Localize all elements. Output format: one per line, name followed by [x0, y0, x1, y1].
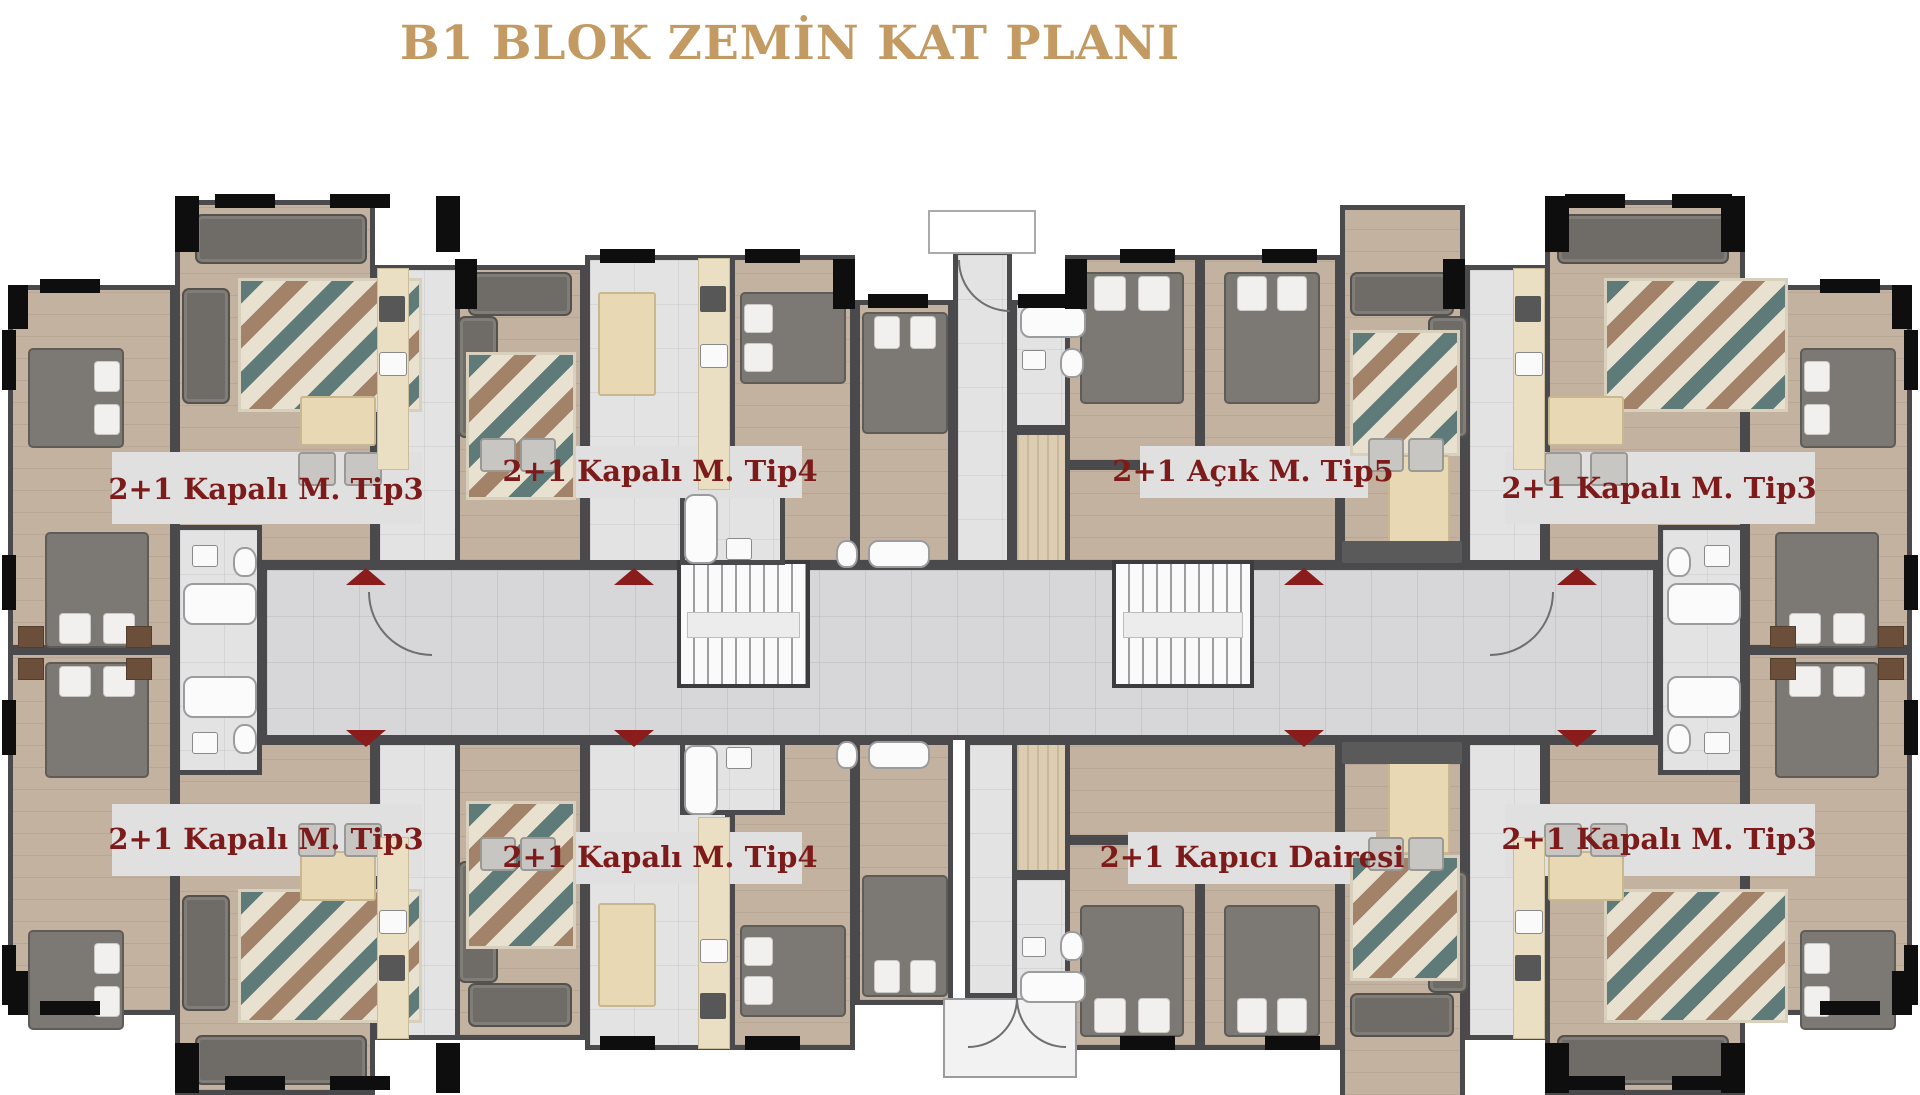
wall-pier — [833, 259, 855, 309]
entrance-arrow-up-icon — [614, 568, 654, 585]
entrance-arrow-down-icon — [614, 730, 654, 747]
wall-pier — [1545, 1043, 1569, 1093]
nightstand — [1878, 626, 1904, 648]
sofa — [1350, 272, 1454, 316]
window-bar — [330, 1076, 390, 1090]
unit-label-tip3-bottom-right: 2+1 Kapalı M. Tip3 — [1501, 822, 1816, 856]
window-bar — [1904, 700, 1918, 755]
bathroom-sink — [1704, 732, 1730, 754]
north-entrance-porch — [928, 210, 1036, 254]
bed — [740, 292, 846, 384]
bathroom-sink — [1022, 350, 1046, 370]
entrance-arrow-down-icon — [1284, 730, 1324, 747]
stove-icon — [379, 296, 405, 322]
toilet — [836, 741, 858, 769]
bed — [1080, 905, 1184, 1037]
window-bar — [1262, 249, 1317, 263]
window-bar — [868, 294, 928, 308]
window-bar — [225, 1076, 285, 1090]
bathtub — [183, 583, 257, 625]
wall-pier — [1892, 285, 1912, 329]
entrance-arrow-up-icon — [346, 568, 386, 585]
kitchen-counter — [1513, 837, 1545, 1039]
kitchen-counter — [1342, 742, 1462, 764]
wall-pier — [8, 285, 28, 329]
bathroom-sink — [726, 747, 752, 769]
unit-label-tip4-top: 2+1 Kapalı M. Tip4 — [502, 454, 817, 488]
bed — [28, 348, 124, 448]
kitchen-sink — [1515, 352, 1543, 376]
stove-icon — [379, 955, 405, 981]
unit-label-tip5-top: 2+1 Açık M. Tip5 — [1112, 454, 1393, 488]
wall-pier — [1065, 259, 1087, 309]
window-bar — [2, 700, 16, 755]
nightstand — [126, 626, 152, 648]
toilet — [1060, 931, 1084, 961]
stove-icon — [700, 286, 726, 312]
unit-label-tip3-top-right: 2+1 Kapalı M. Tip3 — [1501, 471, 1816, 505]
bathroom-sink — [192, 545, 218, 567]
kitchen-sink — [700, 939, 728, 963]
window-bar — [1904, 330, 1918, 390]
stove-icon — [1515, 955, 1541, 981]
entrance-arrow-down-icon — [346, 730, 386, 747]
window-bar — [600, 249, 655, 263]
nightstand — [18, 626, 44, 648]
kitchen-sink — [379, 352, 407, 376]
kitchen-sink — [700, 344, 728, 368]
stairwell — [677, 560, 810, 688]
window-bar — [40, 1001, 100, 1015]
toilet — [233, 724, 257, 754]
rug — [1604, 889, 1788, 1023]
toilet — [836, 540, 858, 568]
kitchen-sink — [1515, 910, 1543, 934]
dining-table — [1548, 396, 1624, 446]
entrance-arrow-up-icon — [1557, 568, 1597, 585]
dining-table — [300, 851, 376, 901]
kitchen-counter — [377, 837, 409, 1039]
bed — [28, 930, 124, 1030]
rug — [1604, 278, 1788, 412]
bathtub — [1667, 583, 1741, 625]
bed — [1224, 905, 1320, 1037]
window-bar — [1565, 1076, 1625, 1090]
bathtub — [684, 494, 718, 564]
sofa — [182, 895, 230, 1011]
window-bar — [1265, 1036, 1320, 1050]
bed — [1080, 272, 1184, 404]
window-bar — [330, 194, 390, 208]
bathroom-sink — [726, 538, 752, 560]
nightstand — [1770, 658, 1796, 680]
bathtub — [1020, 971, 1086, 1003]
armchair — [1408, 837, 1444, 871]
window-bar — [745, 1036, 800, 1050]
stove-icon — [1515, 296, 1541, 322]
bed — [862, 312, 948, 434]
wall-pier — [175, 196, 199, 252]
sofa — [468, 272, 572, 316]
hall — [1065, 740, 1340, 840]
window-bar — [1904, 555, 1918, 610]
wall-pier — [1721, 1043, 1745, 1093]
bathtub — [183, 676, 257, 718]
dining-table — [598, 292, 656, 396]
bed — [1224, 272, 1320, 404]
wall-pier — [436, 1043, 460, 1093]
wall-pier — [1721, 196, 1745, 252]
window-bar — [40, 279, 100, 293]
window-bar — [1820, 279, 1880, 293]
sofa — [195, 214, 367, 264]
bed — [1800, 930, 1896, 1030]
sofa — [1557, 214, 1729, 264]
window-bar — [600, 1036, 655, 1050]
bathroom-sink — [192, 732, 218, 754]
bathroom-sink — [1704, 545, 1730, 567]
armchair — [1408, 438, 1444, 472]
bathroom-sink — [1022, 937, 1046, 957]
window-bar — [1120, 1036, 1175, 1050]
bathtub — [868, 741, 930, 769]
sofa — [468, 983, 572, 1027]
stove-icon — [700, 993, 726, 1019]
wall-pier — [455, 259, 477, 309]
bathtub — [1020, 306, 1086, 338]
entrance-arrow-up-icon — [1284, 568, 1324, 585]
bathtub — [1667, 676, 1741, 718]
unit-label-kapici-dairesi: 2+1 Kapıcı Dairesi — [1100, 840, 1405, 874]
kitchen-sink — [379, 910, 407, 934]
wall-pier — [436, 196, 460, 252]
rug — [466, 801, 576, 949]
unit-label-tip4-bottom: 2+1 Kapalı M. Tip4 — [502, 840, 817, 874]
entrance-arrow-down-icon — [1557, 730, 1597, 747]
nightstand — [1878, 658, 1904, 680]
toilet — [233, 547, 257, 577]
unit-label-tip3-top-left: 2+1 Kapalı M. Tip3 — [108, 472, 423, 506]
window-bar — [1565, 194, 1625, 208]
toilet — [1667, 724, 1691, 754]
bed — [862, 875, 948, 997]
floor-plan-canvas: B1 BLOK ZEMİN KAT PLANI — [0, 0, 1920, 1095]
unit-label-tip3-bottom-left: 2+1 Kapalı M. Tip3 — [108, 822, 423, 856]
wall-pier — [1545, 196, 1569, 252]
stairwell — [1112, 560, 1254, 688]
bed — [1800, 348, 1896, 448]
window-bar — [2, 555, 16, 610]
bed — [740, 925, 846, 1017]
window-bar — [1120, 249, 1175, 263]
nightstand — [126, 658, 152, 680]
sofa — [182, 288, 230, 404]
toilet — [1667, 547, 1691, 577]
window-bar — [215, 194, 275, 208]
toilet — [1060, 348, 1084, 378]
rug — [1350, 330, 1460, 456]
main-corridor — [262, 565, 1658, 740]
plan-title: B1 BLOK ZEMİN KAT PLANI — [400, 16, 1180, 71]
bathtub — [868, 540, 930, 568]
nightstand — [18, 658, 44, 680]
bathtub — [684, 745, 718, 815]
wall-pier — [1892, 971, 1912, 1015]
nightstand — [1770, 626, 1796, 648]
wall-pier — [175, 1043, 199, 1093]
window-bar — [1820, 1001, 1880, 1015]
kitchen-counter — [1342, 541, 1462, 563]
sofa — [1350, 993, 1454, 1037]
wall-pier — [8, 971, 28, 1015]
window-bar — [2, 330, 16, 390]
dining-table — [300, 396, 376, 446]
dining-table — [1548, 851, 1624, 901]
dining-table — [598, 903, 656, 1007]
window-bar — [745, 249, 800, 263]
wall-pier — [1443, 259, 1465, 309]
